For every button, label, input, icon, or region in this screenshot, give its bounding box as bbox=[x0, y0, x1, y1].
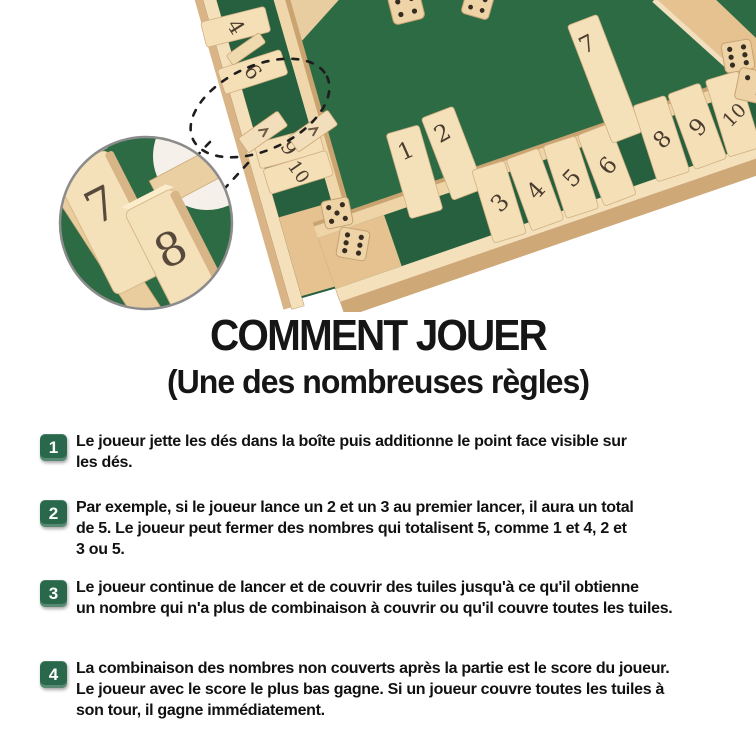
page-title: COMMENT JOUER bbox=[30, 314, 726, 358]
die-corner-1 bbox=[320, 196, 353, 229]
product-photo: 4 6 9 10 1 bbox=[0, 0, 756, 312]
step-number-badge: 2 bbox=[40, 500, 67, 527]
step-row-1: 1 Le joueur jette les dés dans la boîte … bbox=[40, 431, 740, 473]
step-row-3: 3 Le joueur continue de lancer et de cou… bbox=[40, 577, 740, 619]
die-corner-2 bbox=[336, 227, 371, 262]
instruction-steps: 1 Le joueur jette les dés dans la boîte … bbox=[40, 431, 740, 721]
board-photo-illustration: 4 6 9 10 1 bbox=[0, 0, 756, 312]
page-subtitle: (Une des nombreuses règles) bbox=[11, 363, 744, 401]
step-number-badge: 3 bbox=[40, 580, 67, 607]
step-number-badge: 1 bbox=[40, 434, 67, 461]
step-row-2: 2 Par exemple, si le joueur lance un 2 e… bbox=[40, 497, 740, 560]
step-text: Le joueur continue de lancer et de couvr… bbox=[76, 577, 740, 619]
step-text: La combinaison des nombres non couverts … bbox=[76, 658, 740, 721]
step-text: Par exemple, si le joueur lance un 2 et … bbox=[76, 497, 740, 560]
step-text: Le joueur jette les dés dans la boîte pu… bbox=[76, 431, 740, 473]
step-row-4: 4 La combinaison des nombres non couvert… bbox=[40, 658, 740, 721]
step-number-badge: 4 bbox=[40, 661, 67, 688]
die-right-1 bbox=[721, 39, 756, 74]
magnifier-circle: 7 8 bbox=[42, 102, 265, 312]
